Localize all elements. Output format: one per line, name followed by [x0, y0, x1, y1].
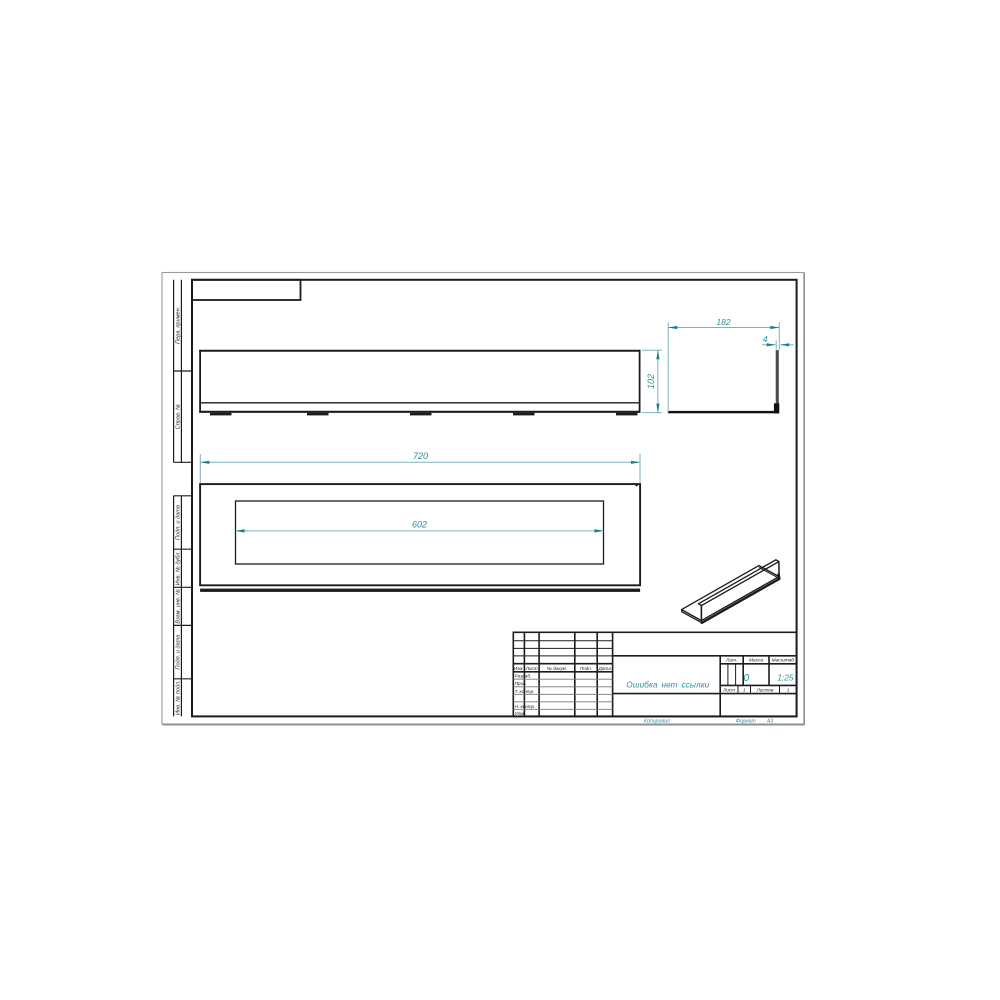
svg-text:Копировал: Копировал: [644, 718, 670, 724]
svg-text:А3: А3: [766, 718, 773, 724]
svg-text:0: 0: [743, 672, 749, 684]
svg-text:Инв. № дубл.: Инв. № дубл.: [176, 551, 182, 585]
svg-text:1: 1: [743, 687, 746, 692]
svg-text:1: 1: [787, 687, 790, 692]
svg-text:Изм.: Изм.: [514, 666, 524, 671]
svg-text:Ошибка нет ссылки: Ошибка нет ссылки: [626, 681, 709, 690]
svg-text:Перв. примен.: Перв. примен.: [176, 307, 182, 344]
svg-text:Лист: Лист: [722, 687, 735, 692]
svg-text:Н. контр.: Н. контр.: [515, 704, 536, 709]
svg-text:Лит.: Лит.: [725, 658, 737, 664]
svg-text:№ докум.: № докум.: [547, 666, 567, 671]
svg-text:Листов: Листов: [756, 687, 774, 692]
svg-text:Дата: Дата: [598, 666, 612, 671]
svg-text:Инв. № подл.: Инв. № подл.: [176, 680, 182, 715]
svg-text:Подп.: Подп.: [580, 666, 592, 671]
svg-text:Пров.: Пров.: [515, 681, 527, 686]
svg-text:4: 4: [763, 334, 768, 344]
svg-text:Масса: Масса: [749, 658, 764, 664]
svg-text:Взам. инв. №: Взам. инв. №: [176, 589, 182, 624]
svg-text:Разраб.: Разраб.: [515, 674, 532, 679]
svg-text:1:25: 1:25: [777, 673, 794, 683]
svg-text:720: 720: [413, 451, 428, 461]
svg-text:182: 182: [716, 317, 730, 327]
svg-text:Подп. и дата: Подп. и дата: [176, 505, 182, 540]
svg-text:Справ. №: Справ. №: [176, 404, 182, 429]
svg-text:Подп. и дата: Подп. и дата: [176, 635, 182, 670]
svg-text:Утв.: Утв.: [515, 711, 525, 716]
svg-text:Т. контр.: Т. контр.: [515, 689, 535, 694]
svg-text:Лист: Лист: [525, 666, 538, 671]
svg-text:Формат: Формат: [736, 718, 756, 724]
svg-text:Масштаб: Масштаб: [772, 658, 795, 664]
svg-text:602: 602: [412, 520, 427, 530]
svg-text:102: 102: [646, 374, 656, 389]
